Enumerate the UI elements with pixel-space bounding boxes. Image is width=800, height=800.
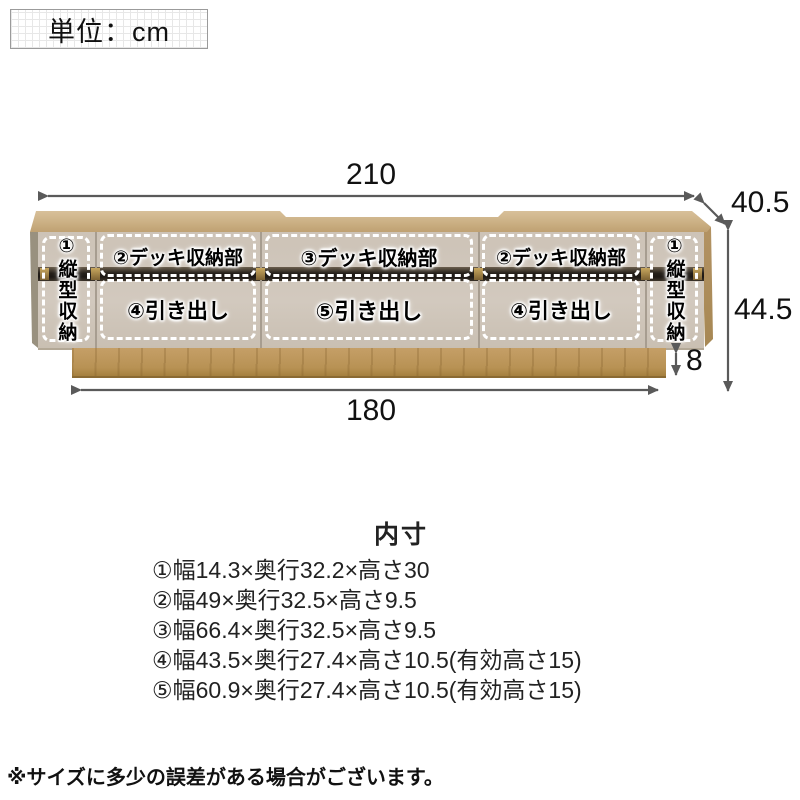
label-right-vertical-storage: ①縦型収納 bbox=[650, 236, 698, 342]
section-divider bbox=[645, 232, 647, 348]
dim-height: 44.5 bbox=[734, 293, 792, 327]
dim-depth: 40.5 bbox=[731, 186, 789, 220]
label-deck-center: ③デッキ収納部 bbox=[265, 239, 473, 273]
dim-width-total: 210 bbox=[346, 158, 396, 192]
label-drawer-left: ④引き出し bbox=[100, 286, 256, 334]
inner-dimension-item: ⑤幅60.9×奥行27.4×高さ10.5(有効高さ15) bbox=[152, 671, 582, 705]
section-divider bbox=[260, 232, 262, 348]
section-divider bbox=[478, 232, 480, 348]
label-deck-left: ②デッキ収納部 bbox=[100, 239, 256, 273]
dim-base-height: 8 bbox=[686, 344, 703, 378]
inner-dimension-item: ①幅14.3×奥行32.2×高さ30 bbox=[152, 551, 430, 585]
inner-dimensions-title: 内寸 bbox=[374, 515, 428, 551]
inner-dimension-item: ②幅49×奥行32.5×高さ9.5 bbox=[152, 581, 417, 615]
section-divider bbox=[95, 232, 97, 348]
size-tolerance-footnote: ※サイズに多少の誤差がある場合がございます。 bbox=[7, 761, 444, 790]
label-left-vertical-storage: ①縦型収納 bbox=[42, 236, 90, 342]
cabinet-top-surface bbox=[30, 211, 714, 232]
label-deck-right: ②デッキ収納部 bbox=[482, 239, 640, 273]
unit-label: 単位：cm bbox=[48, 10, 170, 49]
unit-label-box: 単位：cm bbox=[10, 9, 208, 49]
inner-dimension-item: ③幅66.4×奥行32.5×高さ9.5 bbox=[152, 611, 436, 645]
cabinet-base-plinth bbox=[72, 348, 666, 378]
inner-dimension-item: ④幅43.5×奥行27.4×高さ10.5(有効高さ15) bbox=[152, 641, 582, 675]
brass-accent bbox=[256, 268, 265, 280]
brass-accent bbox=[641, 268, 650, 280]
dim-base-width: 180 bbox=[346, 394, 396, 428]
label-drawer-center: ⑤引き出し bbox=[265, 286, 473, 334]
tv-stand-diagram: ①縦型収納 ②デッキ収納部 ③デッキ収納部 ②デッキ収納部 ①縦型収納 ④引き出… bbox=[30, 211, 714, 379]
label-drawer-right: ④引き出し bbox=[482, 286, 640, 334]
brass-accent bbox=[91, 268, 100, 280]
